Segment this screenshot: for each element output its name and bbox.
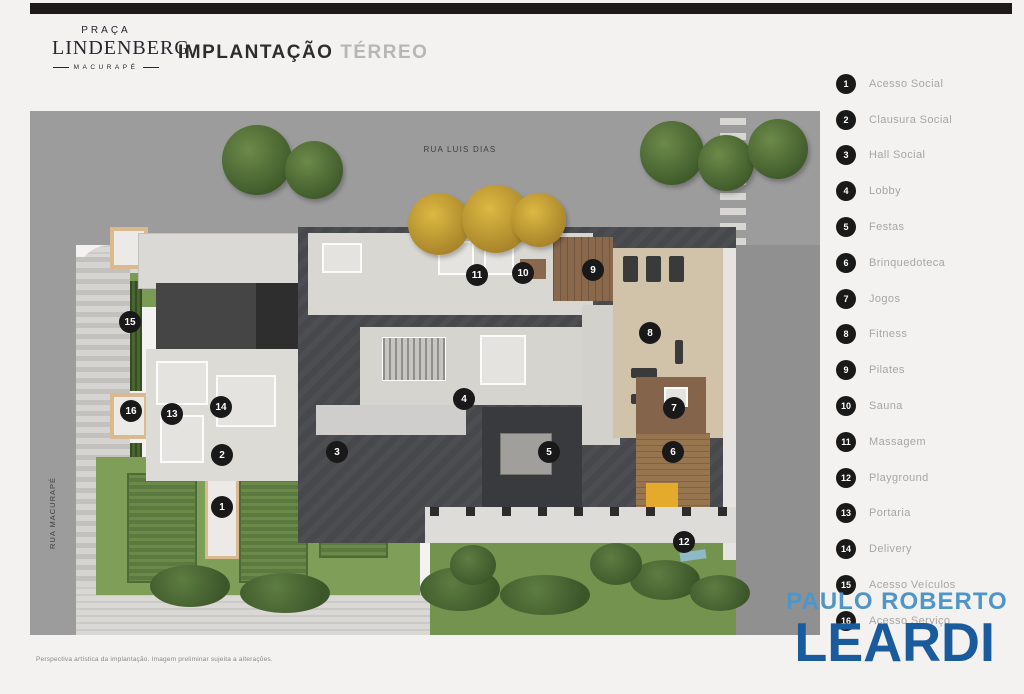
legend-row-11: 11Massagem [836,424,1016,460]
top-rule-bar [30,3,1012,14]
legend-label: Brinquedoteca [869,257,945,269]
legend-row-4: 4Lobby [836,173,1016,209]
legend-label: Sauna [869,400,903,412]
legend-label: Portaria [869,507,911,519]
legend-row-1: 1Acesso Social [836,66,1016,102]
plan-marker-10: 10 [512,262,534,284]
plan-marker-2: 2 [211,444,233,466]
plan-marker-1: 1 [211,496,233,518]
legend-row-5: 5Festas [836,209,1016,245]
legend-number-badge: 3 [836,145,856,165]
logo-rule-right [143,67,159,68]
legend-row-9: 9Pilates [836,352,1016,388]
legend-label: Pilates [869,364,905,376]
legend-label: Playground [869,472,929,484]
legend-label: Fitness [869,328,907,340]
legend-number-badge: 13 [836,503,856,523]
legend-number-badge: 2 [836,110,856,130]
legend-label: Festas [869,221,904,233]
plan-marker-13: 13 [161,403,183,425]
plan-marker-8: 8 [639,322,661,344]
logo-line-praca: PRAÇA [52,25,160,36]
plan-marker-3: 3 [326,441,348,463]
plan-marker-14: 14 [210,396,232,418]
logo-line-lindenberg: LINDENBERG [52,37,160,60]
legend-label: Massagem [869,436,926,448]
legend-number-badge: 5 [836,217,856,237]
plan-marker-15: 15 [119,311,141,333]
logo-rule-left [53,67,69,68]
logo-macurape-text: MACURAPÉ [74,64,139,71]
legend-row-12: 12Playground [836,460,1016,496]
plan-marker-9: 9 [582,259,604,281]
legend-number-badge: 10 [836,396,856,416]
legend-number-badge: 4 [836,181,856,201]
plan-marker-7: 7 [663,397,685,419]
page-title-light: TÉRREO [340,42,428,63]
legend-number-badge: 11 [836,432,856,452]
legend-number-badge: 7 [836,289,856,309]
legend-row-3: 3Hall Social [836,138,1016,174]
site-plan: RUA LUIS DIAS RUA MACURAPÉ 1234567891011… [30,105,820,635]
watermark-logo: PAULO ROBERTO LEARDI [779,590,1015,670]
legend-label: Lobby [869,185,901,197]
street-label-rua-macurape: RUA MACURAPÉ [48,477,57,549]
disclaimer-text: Perspectiva artística da implantação. Im… [36,656,273,663]
legend-label: Clausura Social [869,114,952,126]
plan-marker-4: 4 [453,388,475,410]
plan-marker-11: 11 [466,264,488,286]
legend-label: Delivery [869,543,912,555]
legend-label: Hall Social [869,149,925,161]
legend: 1Acesso Social2Clausura Social3Hall Soci… [836,66,1016,639]
legend-row-10: 10Sauna [836,388,1016,424]
page-title: IMPLANTAÇÃO TÉRREO [178,42,428,64]
legend-label: Jogos [869,293,900,305]
legend-row-13: 13Portaria [836,496,1016,532]
legend-row-6: 6Brinquedoteca [836,245,1016,281]
watermark-brand: LEARDI [779,615,1010,670]
plan-markers: 12345678910111213141516 [30,105,820,635]
legend-number-badge: 8 [836,324,856,344]
legend-number-badge: 6 [836,253,856,273]
legend-row-7: 7Jogos [836,281,1016,317]
brand-logo: PRAÇA LINDENBERG MACURAPÉ [52,25,160,71]
legend-number-badge: 1 [836,74,856,94]
legend-number-badge: 14 [836,539,856,559]
logo-line-macurape: MACURAPÉ [52,64,160,71]
plan-marker-6: 6 [662,441,684,463]
page-title-bold: IMPLANTAÇÃO [178,42,333,63]
plan-marker-5: 5 [538,441,560,463]
legend-label: Acesso Social [869,78,943,90]
street-label-rua-luis-dias: RUA LUIS DIAS [360,145,560,154]
legend-row-2: 2Clausura Social [836,102,1016,138]
legend-row-8: 8Fitness [836,317,1016,353]
plan-marker-16: 16 [120,400,142,422]
legend-row-14: 14Delivery [836,531,1016,567]
legend-number-badge: 12 [836,468,856,488]
plan-marker-12: 12 [673,531,695,553]
legend-number-badge: 9 [836,360,856,380]
